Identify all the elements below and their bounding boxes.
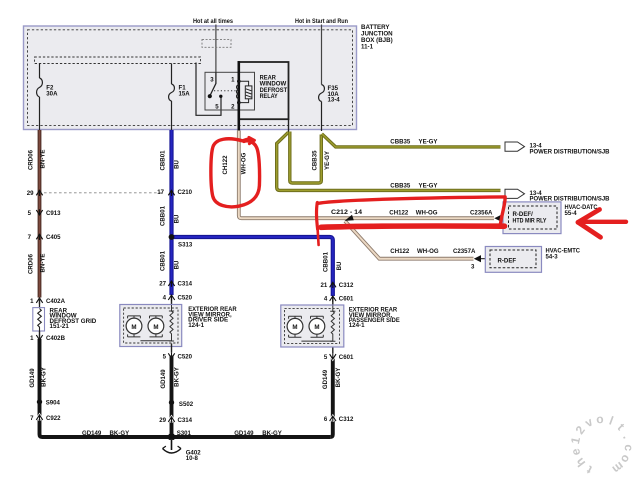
svg-text:C913: C913 [46,210,61,217]
svg-text:C314: C314 [178,281,193,288]
svg-text:CBB01: CBB01 [160,150,167,171]
svg-text:BU: BU [174,160,181,169]
svg-text:WH-OG: WH-OG [417,248,439,255]
svg-text:10-8: 10-8 [186,455,199,462]
svg-text:C601: C601 [339,296,354,303]
svg-text:CRD06: CRD06 [28,253,35,274]
svg-text:YE-GY: YE-GY [419,138,438,145]
svg-text:151-21: 151-21 [50,323,70,330]
svg-text:C520: C520 [178,295,193,302]
svg-text:CH122: CH122 [389,209,409,216]
svg-text:C520: C520 [178,353,193,360]
svg-text:C312: C312 [339,282,354,289]
svg-text:CBB35: CBB35 [390,183,411,190]
svg-text:C2356A: C2356A [470,209,493,216]
svg-text:POWER DISTRIBUTION/SJB: POWER DISTRIBUTION/SJB [530,149,611,156]
svg-text:M: M [292,324,297,331]
svg-text:RELAY: RELAY [260,93,279,100]
svg-text:GD149: GD149 [160,369,167,389]
svg-text:YE-GY: YE-GY [419,183,438,190]
svg-text:5: 5 [324,354,328,361]
svg-text:M: M [314,324,319,331]
svg-text:CRD06: CRD06 [28,149,35,170]
svg-text:4: 4 [324,296,328,303]
svg-text:30A: 30A [46,90,58,97]
svg-text:CBB01: CBB01 [323,251,330,272]
svg-text:GD149: GD149 [234,430,254,437]
svg-text:WH-OG: WH-OG [241,152,248,174]
svg-text:BK-GY: BK-GY [335,368,342,388]
svg-text:124-1: 124-1 [349,322,365,329]
svg-text:BK-GY: BK-GY [262,430,282,437]
svg-text:BU: BU [174,260,181,269]
svg-text:C210: C210 [178,189,193,196]
svg-text:Hot in Start and Run: Hot in Start and Run [295,18,348,25]
svg-text:6: 6 [324,416,328,423]
svg-text:5: 5 [215,104,219,111]
svg-text:GD149: GD149 [82,430,102,437]
svg-text:C2357A: C2357A [453,248,476,255]
svg-text:GD149: GD149 [322,369,329,389]
svg-text:HTD MIR RLY: HTD MIR RLY [513,218,547,225]
svg-text:c: c [622,444,636,452]
svg-text:R-DEF: R-DEF [498,257,517,264]
svg-text:17: 17 [157,189,164,196]
svg-text:29: 29 [27,190,34,197]
svg-text:Hot at all times: Hot at all times [193,18,234,25]
svg-text:C405: C405 [46,234,61,241]
svg-text:M: M [153,324,158,331]
svg-text:S313: S313 [178,242,193,249]
svg-text:C601: C601 [339,354,354,361]
svg-text:C312: C312 [339,416,354,423]
svg-text:YE-GY: YE-GY [324,151,331,170]
svg-text:BN-YE: BN-YE [40,254,47,273]
svg-text:11-1: 11-1 [361,44,374,51]
svg-text:WH-OG: WH-OG [416,209,438,216]
svg-text:124-1: 124-1 [188,322,204,329]
svg-text:BU: BU [336,261,343,270]
svg-text:o: o [596,412,604,426]
svg-text:C212 - 14: C212 - 14 [331,209,363,216]
svg-text:54-3: 54-3 [546,254,559,261]
svg-text:CH122: CH122 [222,155,229,175]
svg-text:BN-YE: BN-YE [40,150,47,169]
svg-text:BK-GY: BK-GY [174,367,181,387]
svg-text:21: 21 [321,282,328,289]
svg-text:13-4: 13-4 [328,97,341,104]
svg-text:15A: 15A [179,90,191,97]
svg-text:CBB01: CBB01 [160,250,167,271]
svg-text:BK-GY: BK-GY [41,367,48,387]
svg-text:55-4: 55-4 [565,210,578,217]
svg-text:S904: S904 [46,400,61,407]
svg-text:BU: BU [174,214,181,223]
svg-text:M: M [131,324,136,331]
svg-text:C922: C922 [46,415,61,422]
svg-text:CBB35: CBB35 [312,150,319,171]
svg-text:C402A: C402A [46,298,66,305]
svg-text:C314: C314 [178,417,193,424]
svg-text:GD149: GD149 [29,368,36,388]
svg-text:CBB01: CBB01 [160,205,167,226]
svg-text:27: 27 [159,281,166,288]
svg-text:CBB35: CBB35 [390,138,411,145]
svg-text:C402B: C402B [46,335,66,342]
svg-text:S301: S301 [177,430,192,437]
svg-text:CH122: CH122 [390,248,410,255]
svg-text:S502: S502 [179,401,194,408]
svg-text:29: 29 [159,417,166,424]
svg-text:BK-GY: BK-GY [110,430,130,437]
